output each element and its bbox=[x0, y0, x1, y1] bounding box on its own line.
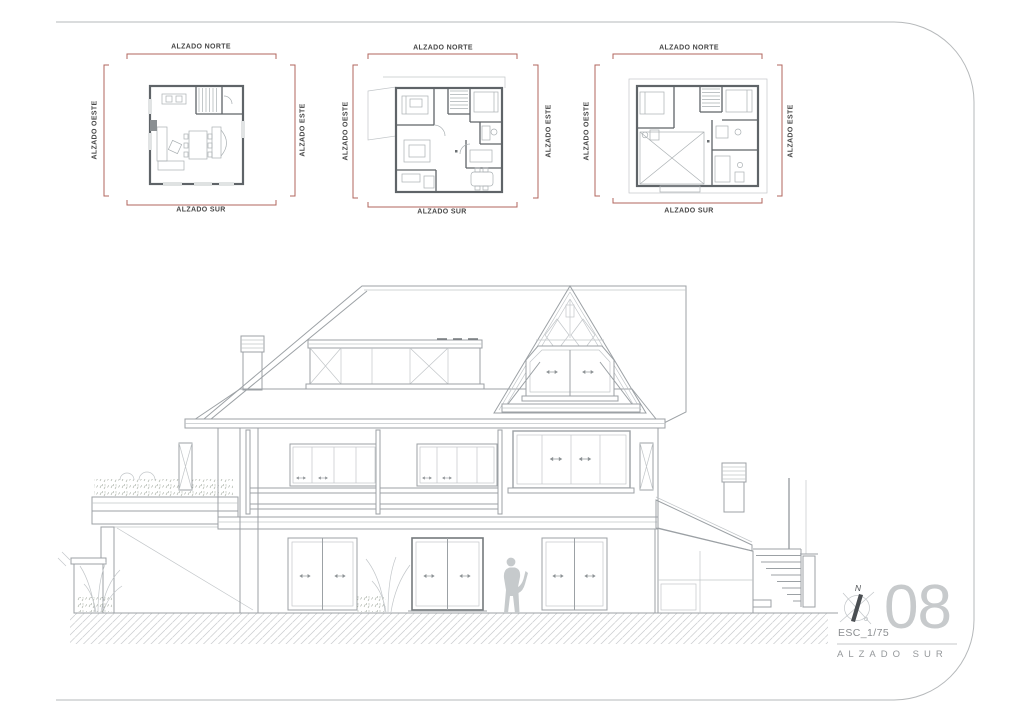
plan1-label-west: ALZADO OESTE bbox=[92, 100, 99, 159]
plan1-label-north: ALZADO NORTE bbox=[171, 44, 231, 51]
pergola-carport bbox=[58, 472, 253, 613]
floor-plan-ground bbox=[149, 86, 244, 185]
annex-roof bbox=[656, 500, 752, 551]
balcony-window-right bbox=[417, 444, 497, 486]
green-roof-vegetation bbox=[94, 479, 233, 497]
sliding-door-left bbox=[288, 538, 357, 610]
drawing-canvas: N bbox=[0, 0, 1024, 724]
sliding-door-right bbox=[542, 538, 607, 610]
plan3-label-south: ALZADO SUR bbox=[664, 208, 713, 215]
plan2-label-north: ALZADO NORTE bbox=[413, 45, 473, 52]
floor-band bbox=[218, 517, 658, 529]
drawing-sheet: N ALZADO NORTE ALZADO SUR ALZADO OESTE A… bbox=[0, 0, 1024, 724]
eave-fascia bbox=[185, 419, 665, 428]
balcony-window-left bbox=[290, 444, 378, 486]
shutter-left bbox=[179, 443, 192, 490]
dormer-strip-window bbox=[306, 339, 484, 389]
plan2-label-west: ALZADO OESTE bbox=[343, 101, 350, 160]
plan3-dimension-brackets bbox=[595, 54, 782, 203]
fireplace bbox=[150, 120, 157, 131]
plan2-label-east: ALZADO ESTE bbox=[546, 104, 553, 157]
plan3-label-east: ALZADO ESTE bbox=[788, 104, 795, 157]
annex-chimney bbox=[722, 463, 746, 512]
stair-railing bbox=[789, 478, 806, 554]
plan1-label-south: ALZADO SUR bbox=[176, 207, 225, 214]
floor-plan-first bbox=[368, 77, 505, 192]
ground-hatch bbox=[70, 613, 838, 644]
exterior-stairs bbox=[753, 549, 801, 607]
annex-building bbox=[656, 463, 818, 613]
boundary-fence bbox=[800, 554, 818, 607]
sliding-door-center bbox=[408, 538, 487, 611]
scale-label: ESC_1/75 bbox=[838, 627, 889, 639]
ground-floor bbox=[258, 529, 655, 613]
gable bbox=[494, 286, 646, 413]
north-compass-icon: N bbox=[840, 583, 874, 624]
plan3-label-north: ALZADO NORTE bbox=[659, 45, 719, 52]
floor-plan-second bbox=[629, 79, 767, 193]
drawing-title: ALZADO SUR bbox=[837, 649, 948, 660]
plan2-label-south: ALZADO SUR bbox=[417, 209, 466, 216]
plan1-dimension-brackets bbox=[104, 54, 295, 205]
plant-center bbox=[356, 557, 410, 612]
human-figure bbox=[504, 558, 528, 613]
shutter-right bbox=[640, 443, 653, 490]
main-chimney bbox=[241, 336, 264, 390]
plan1-label-east: ALZADO ESTE bbox=[300, 103, 307, 156]
compass-north-letter: N bbox=[855, 583, 862, 593]
plan3-label-west: ALZADO OESTE bbox=[584, 101, 591, 160]
south-elevation-drawing bbox=[58, 286, 838, 644]
sheet-number: 08 bbox=[884, 575, 951, 641]
annex-wall bbox=[658, 528, 753, 613]
upper-floor bbox=[179, 428, 658, 518]
upper-window-right bbox=[508, 431, 634, 493]
